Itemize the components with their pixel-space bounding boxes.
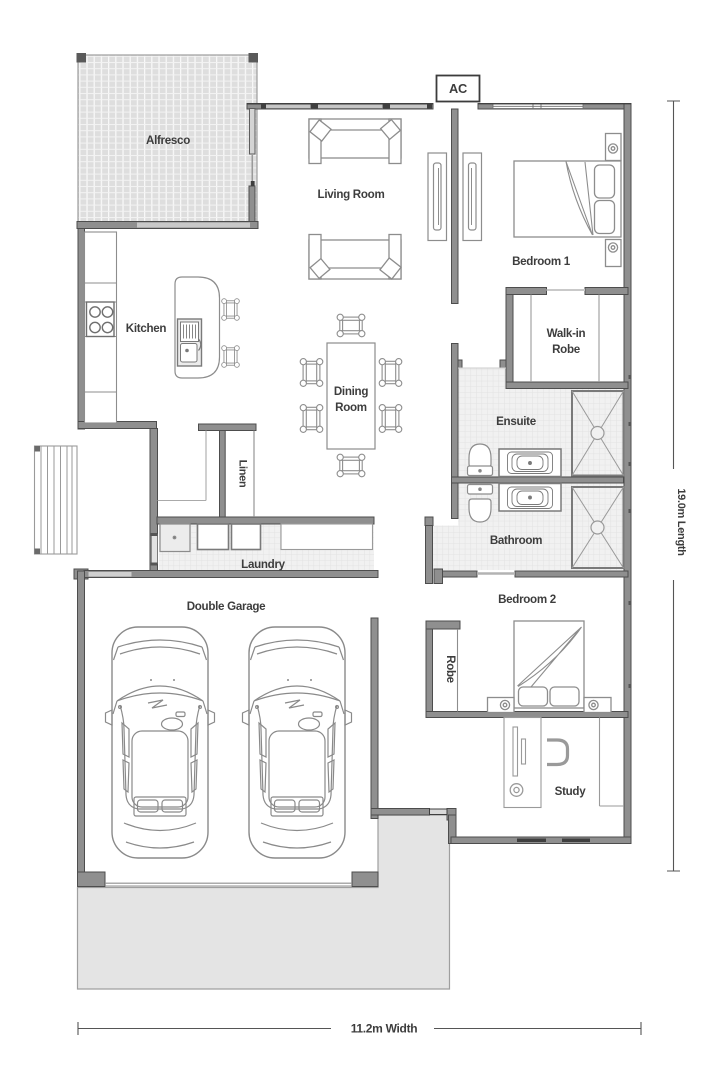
svg-text:Study: Study [555,785,587,798]
svg-text:Linen: Linen [237,460,249,488]
svg-text:11.2m Width: 11.2m Width [351,1022,418,1036]
svg-text:Robe: Robe [444,655,456,683]
svg-text:Robe: Robe [552,343,581,356]
svg-text:AC: AC [449,81,467,96]
svg-text:Laundry: Laundry [241,558,285,571]
svg-text:Alfresco: Alfresco [146,134,190,147]
svg-text:Double Garage: Double Garage [187,600,266,613]
svg-text:Bedroom 1: Bedroom 1 [512,255,571,268]
svg-text:Bathroom: Bathroom [490,534,542,547]
svg-text:19.0m Length: 19.0m Length [675,488,687,556]
svg-text:Kitchen: Kitchen [126,322,167,335]
svg-text:Dining: Dining [334,385,368,398]
svg-text:Walk-in: Walk-in [547,327,586,340]
svg-text:Living Room: Living Room [318,188,385,201]
svg-text:Bedroom 2: Bedroom 2 [498,593,556,606]
svg-text:Room: Room [335,401,367,414]
svg-text:Ensuite: Ensuite [496,415,537,428]
